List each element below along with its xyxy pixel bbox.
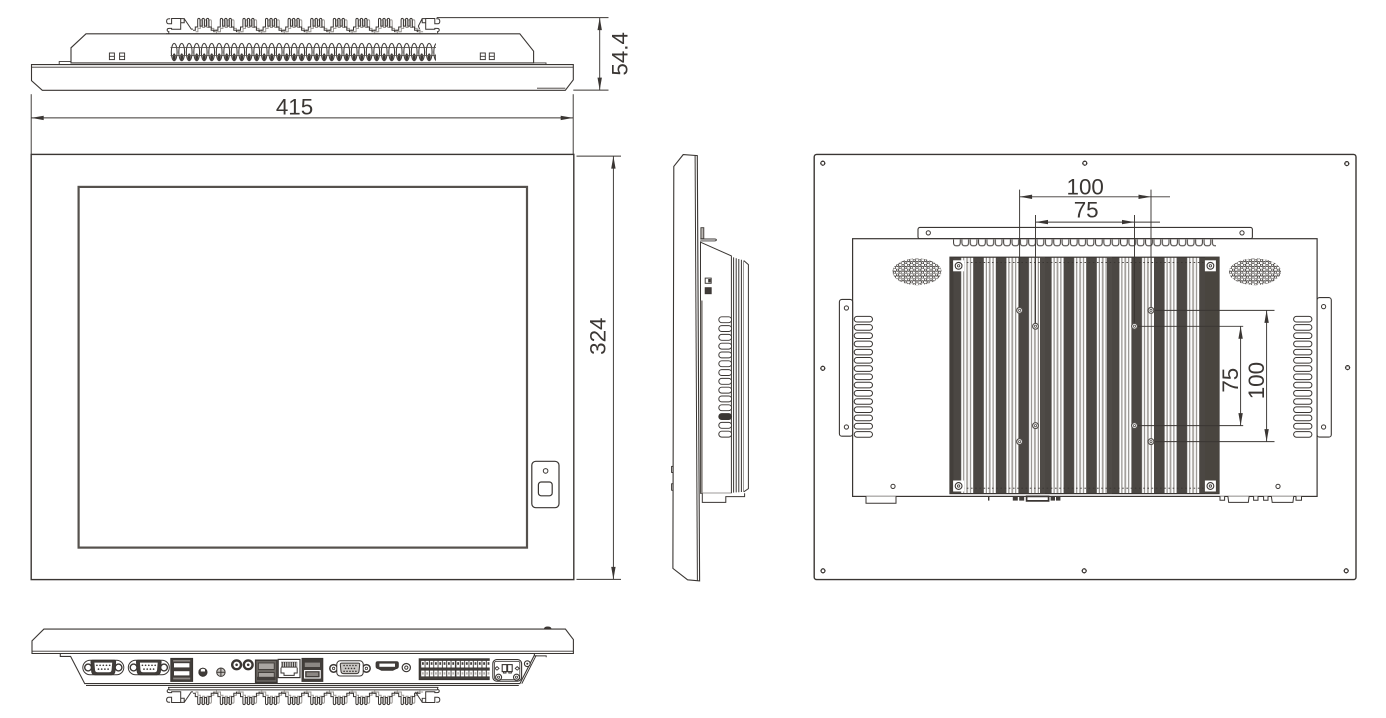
- svg-text:415: 415: [276, 95, 313, 120]
- svg-text:100: 100: [1244, 362, 1269, 399]
- svg-text:324: 324: [586, 318, 611, 355]
- svg-text:75: 75: [1218, 368, 1243, 393]
- svg-text:75: 75: [1074, 197, 1099, 222]
- svg-text:100: 100: [1067, 174, 1104, 199]
- svg-text:54.4: 54.4: [608, 32, 633, 76]
